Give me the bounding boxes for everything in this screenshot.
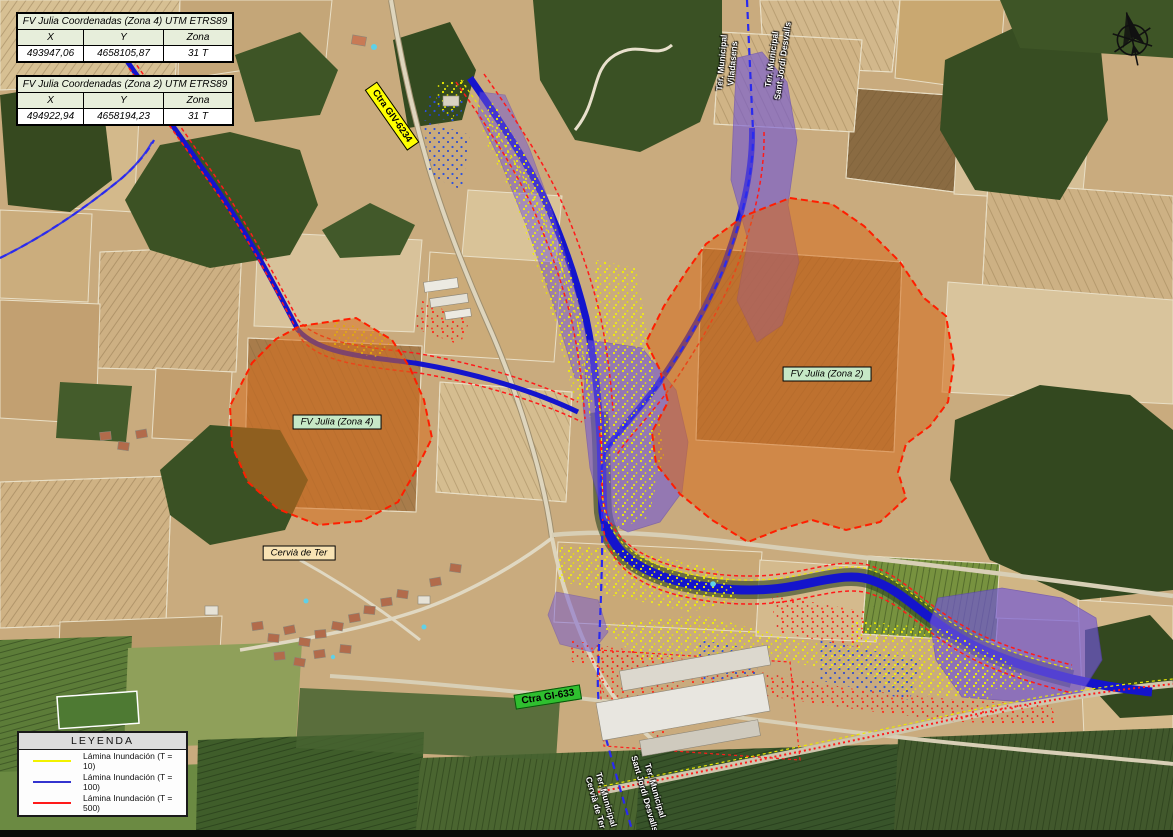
coords-table-zona2: FV Julia Coordenadas (Zona 2) UTM ETRS89… <box>16 75 234 126</box>
legend-label-t500: Lámina Inundación (T = 500) <box>83 793 186 813</box>
legend-item-t500: Lámina Inundación (T = 500) <box>19 792 186 813</box>
col-header-zona: Zona <box>164 93 232 108</box>
coord-x-zona2: 494922,94 <box>18 109 84 124</box>
coords-table-zona4: FV Julia Coordenadas (Zona 4) UTM ETRS89… <box>16 12 234 63</box>
zone4-label: FV Julia (Zona 4) <box>293 415 382 430</box>
legend-label-t100: Lámina Inundación (T = 100) <box>83 772 186 792</box>
legend-item-t100: Lámina Inundación (T = 100) <box>19 771 186 792</box>
legend-panel: LEYENDA Lámina Inundación (T = 10) Lámin… <box>17 731 188 817</box>
map-frame-bottom-edge <box>0 830 1173 837</box>
coord-zone-zona2: 31 T <box>164 109 232 124</box>
coords-table-zona2-title: FV Julia Coordenadas (Zona 2) UTM ETRS89 <box>18 77 232 93</box>
col-header-zona: Zona <box>164 30 232 45</box>
t100-line-swatch <box>33 781 71 783</box>
coord-y-zona4: 4658105,87 <box>84 46 164 61</box>
coord-x-zona4: 493947,06 <box>18 46 84 61</box>
col-header-x: X <box>18 93 84 108</box>
col-header-y: Y <box>84 30 164 45</box>
col-header-y: Y <box>84 93 164 108</box>
north-arrow-icon <box>1102 8 1162 68</box>
t500-line-swatch <box>33 802 71 804</box>
town-label-cervia: Cervià de Ter <box>263 546 336 561</box>
t10-line-swatch <box>33 760 71 762</box>
coord-zone-zona4: 31 T <box>164 46 232 61</box>
coords-table-zona4-title: FV Julia Coordenadas (Zona 4) UTM ETRS89 <box>18 14 232 30</box>
zone2-label: FV Julia (Zona 2) <box>783 367 872 382</box>
flood-map-sheet: FV Julia Coordenadas (Zona 4) UTM ETRS89… <box>0 0 1173 837</box>
col-header-x: X <box>18 30 84 45</box>
coord-y-zona2: 4658194,23 <box>84 109 164 124</box>
legend-item-t10: Lámina Inundación (T = 10) <box>19 750 186 771</box>
legend-title: LEYENDA <box>19 733 186 750</box>
legend-label-t10: Lámina Inundación (T = 10) <box>83 751 186 771</box>
